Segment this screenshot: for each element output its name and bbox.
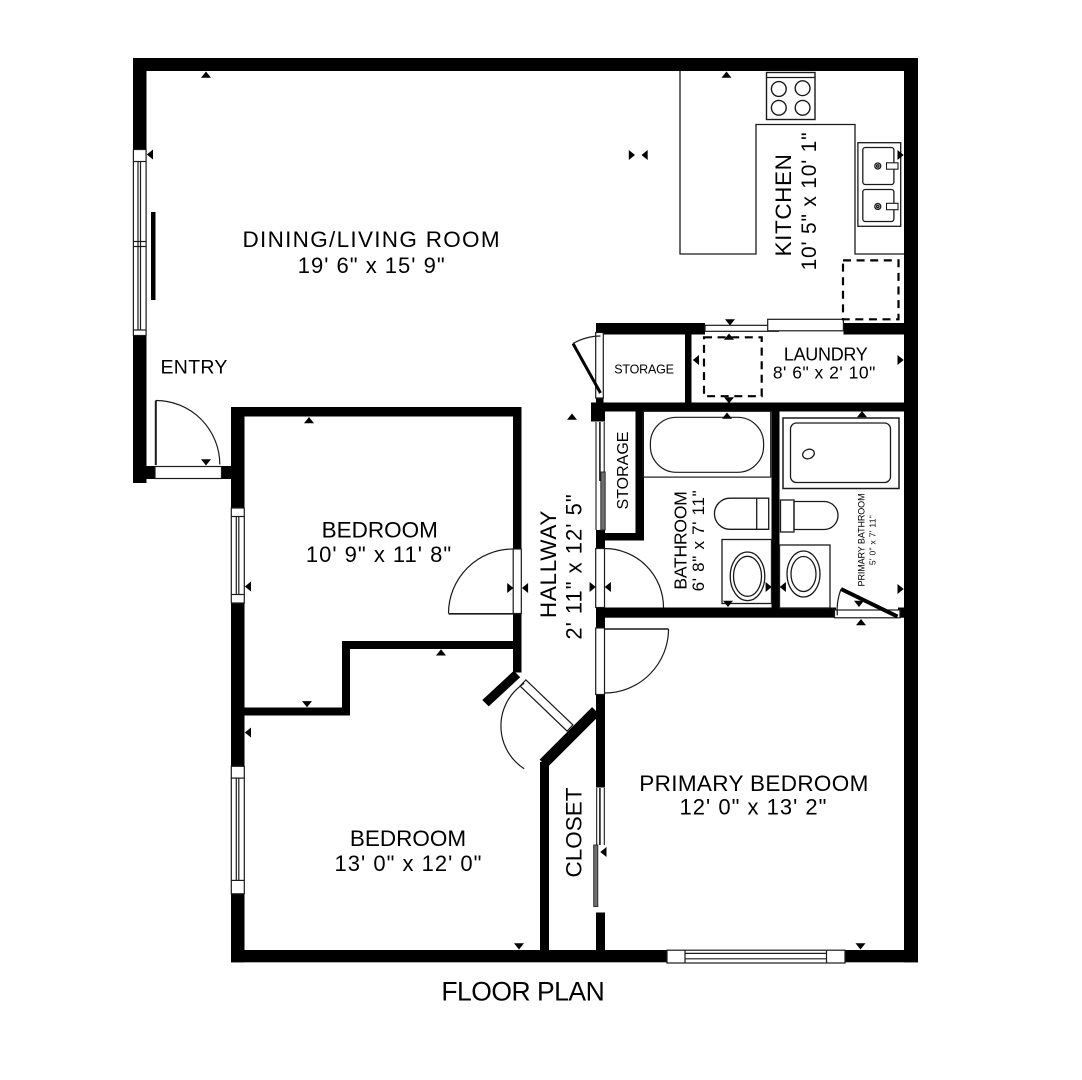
svg-text:5' 0" x 7' 11": 5' 0" x 7' 11" — [868, 515, 878, 565]
svg-text:BEDROOM: BEDROOM — [350, 826, 466, 851]
svg-text:PRIMARY BATHROOM: PRIMARY BATHROOM — [857, 494, 867, 587]
svg-text:6' 8" x 7' 11": 6' 8" x 7' 11" — [689, 490, 708, 592]
svg-text:DINING/LIVING ROOM: DINING/LIVING ROOM — [242, 227, 500, 252]
svg-text:8' 6" x 2' 10": 8' 6" x 2' 10" — [773, 362, 876, 382]
svg-text:KITCHEN: KITCHEN — [771, 154, 796, 257]
svg-text:13' 0" x 12' 0": 13' 0" x 12' 0" — [335, 851, 483, 876]
svg-text:PRIMARY BEDROOM: PRIMARY BEDROOM — [639, 771, 868, 796]
svg-text:10' 9" x 11' 8": 10' 9" x 11' 8" — [306, 542, 452, 567]
svg-text:2' 11" x 12' 5": 2' 11" x 12' 5" — [562, 493, 587, 639]
svg-text:CLOSET: CLOSET — [562, 787, 587, 877]
svg-text:STORAGE: STORAGE — [614, 362, 674, 376]
svg-text:BEDROOM: BEDROOM — [322, 518, 438, 543]
svg-text:STORAGE: STORAGE — [615, 432, 632, 510]
svg-text:HALLWAY: HALLWAY — [536, 510, 561, 618]
svg-text:10' 5" x 10' 1": 10' 5" x 10' 1" — [798, 132, 821, 271]
svg-text:ENTRY: ENTRY — [161, 357, 228, 379]
svg-text:19' 6" x 15' 9": 19' 6" x 15' 9" — [298, 253, 446, 278]
svg-text:FLOOR PLAN: FLOOR PLAN — [441, 977, 604, 1007]
svg-text:BATHROOM: BATHROOM — [671, 491, 691, 589]
svg-text:12' 0" x 13' 2": 12' 0" x 13' 2" — [680, 795, 828, 820]
